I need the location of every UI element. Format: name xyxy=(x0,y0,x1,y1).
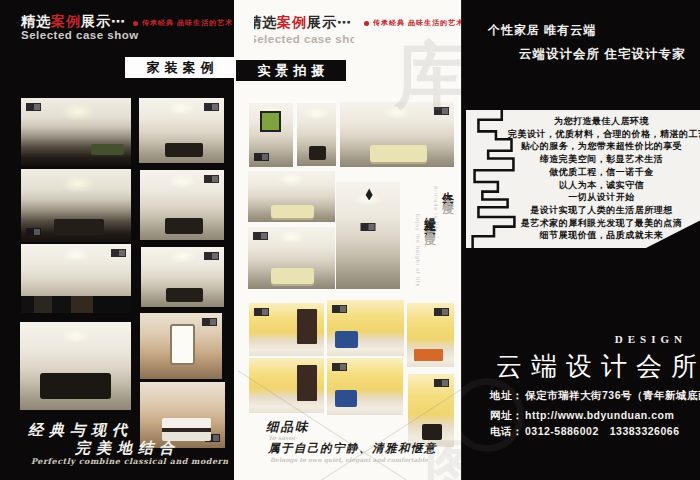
scene-photo-chandelier-dining xyxy=(336,182,400,289)
taste-line: 属于自己的宁静、清雅和惬意 xyxy=(268,441,437,456)
address-value: 保定市瑞祥大街736号（青年新城底商） xyxy=(525,389,700,401)
intro-line: 贴心的服务，为您带来超性价比的享受 xyxy=(508,140,695,153)
intro-line: 完美设计，优质材料，合理的价格，精湛的工艺 xyxy=(508,128,695,141)
vertical-text-dark: 缦享生活 xyxy=(424,208,436,220)
corner-triangle-decor xyxy=(646,220,700,248)
middle-panel-title: 精选案例展示⋯ xyxy=(254,14,352,30)
photo-logo-stamp xyxy=(204,175,219,183)
panel-home-cases: 精选案例展示⋯ Selected case show 传承经典 品味生活的艺术 … xyxy=(0,0,234,480)
photo-logo-stamp xyxy=(332,363,347,371)
intro-line: 一切从设计开始 xyxy=(508,191,695,204)
case-photo-dining-pattern-floor xyxy=(21,244,131,313)
slogan-expert: 云端设计会所 住宅设计专家 xyxy=(519,46,685,63)
intro-line: 为您打造最佳人居环境 xyxy=(508,115,695,128)
photo-logo-stamp xyxy=(434,308,449,316)
photo-logo-stamp xyxy=(254,308,269,316)
intro-line: 做优质工程，信一诺千金 xyxy=(508,166,695,179)
middle-panel-subtitle: Selected case show xyxy=(254,33,354,43)
scene-photo-yellow-dining xyxy=(249,303,324,356)
left-tagline-text: 传承经典 品味生活的艺术 xyxy=(142,18,233,28)
website-value: http://www.bdyunduan.com xyxy=(525,409,674,421)
middle-tagline: 传承经典 品味生活的艺术 xyxy=(364,18,464,28)
case-photo-bright-living xyxy=(139,98,224,163)
intro-line: 以人为本，诚实守信 xyxy=(508,179,695,192)
middle-subtitle-clip: Selected case show xyxy=(254,29,354,43)
taste-title-english: To savor xyxy=(268,434,296,441)
design-label: DESIGN xyxy=(462,333,687,345)
contact-phone: 电话：0312-5886002 13383326066 xyxy=(490,425,679,439)
phone-value: 0312-5886002 13383326066 xyxy=(525,425,679,437)
scene-photo-yellow-hall-blue-door xyxy=(327,358,403,415)
scene-photo-yellow-orange-table xyxy=(407,303,454,367)
title-red-part: 案例 xyxy=(277,14,307,30)
vertical-text-english-2: Enjoy the height of life xyxy=(415,214,421,287)
red-dot-icon xyxy=(133,21,138,26)
case-photo-living-black-sofa xyxy=(21,169,131,242)
scene-photo-cream-sofa-a xyxy=(248,171,335,222)
middle-title-clip: 精选案例展示⋯ xyxy=(254,13,354,30)
photo-logo-stamp xyxy=(332,305,347,313)
photo-logo-stamp xyxy=(202,318,217,326)
photo-logo-stamp xyxy=(204,103,219,111)
left-panel-subtitle: Selected case show xyxy=(21,29,139,41)
address-label: 地址： xyxy=(490,389,523,401)
contact-address: 地址：保定市瑞祥大街736号（青年新城底商） xyxy=(490,389,700,403)
vertical-text-light: 态度 xyxy=(442,189,454,195)
taste-line-english: Belongs to own quiet, elegant and comfor… xyxy=(270,456,428,463)
photo-logo-stamp xyxy=(111,249,126,257)
scene-photo-cream-sofa-b xyxy=(248,227,335,289)
photo-logo-stamp xyxy=(26,103,41,111)
intro-line: 是设计实现了人类的生活居所理想 xyxy=(508,204,695,217)
brand-name: 云端设计会所 xyxy=(496,349,700,384)
case-photo-tv-wall xyxy=(140,170,224,240)
photo-logo-stamp xyxy=(26,228,41,236)
panel-brand-info: 个性家居 唯有云端 云端设计会所 住宅设计专家 为您打造最佳人居环境 完美设计，… xyxy=(461,0,700,480)
left-tagline: 传承经典 品味生活的艺术 xyxy=(133,18,233,28)
title-part1: 精选 xyxy=(21,13,51,29)
title-part1: 精选 xyxy=(254,14,277,30)
case-photo-octagon-hallway xyxy=(140,313,222,379)
photo-logo-stamp xyxy=(205,434,220,442)
intro-box: 为您打造最佳人居环境 完美设计，优质材料，合理的价格，精湛的工艺 贴心的服务，为… xyxy=(466,110,700,248)
tab-home-cases-label: 家装案例 xyxy=(142,59,219,77)
scene-photo-yellow-tv-corner xyxy=(408,374,454,447)
middle-tagline-text: 传承经典 品味生活的艺术 xyxy=(373,18,464,28)
title-red-part: 案例 xyxy=(51,13,81,29)
title-part2: 展示⋯ xyxy=(307,14,352,30)
scene-photo-doorway-art xyxy=(249,103,293,167)
case-photo-living-green-sofa xyxy=(21,98,131,166)
left-footer-english: Perfectly combine classical and modern xyxy=(31,456,229,466)
vertical-text-enjoy-life: 缦享生活高度 xyxy=(422,208,437,226)
slogan-personality: 个性家居 唯有云端 xyxy=(488,22,596,39)
vertical-text-life-attitude: 生活态度 xyxy=(440,183,455,195)
brochure-poster: 精选案例展示⋯ Selected case show 传承经典 品味生活的艺术 … xyxy=(0,0,700,480)
tab-real-scene-label: 实景拍摄 xyxy=(253,62,330,80)
case-photo-black-dining-set xyxy=(20,322,131,410)
photo-logo-stamp xyxy=(361,223,376,231)
tab-real-scene: 实景拍摄 xyxy=(236,60,346,81)
title-part2: 展示⋯ xyxy=(81,13,126,29)
photo-logo-stamp xyxy=(434,379,449,387)
red-dot-icon xyxy=(364,21,369,26)
intro-line: 缔造完美空间，彰显艺术生活 xyxy=(508,153,695,166)
scene-photo-bar-stools xyxy=(297,103,336,166)
panel-real-scene: 精选案例展示⋯ Selected case show 传承经典 品味生活的艺术 … xyxy=(234,0,461,480)
vertical-text-light: 高度 xyxy=(424,220,436,226)
photo-logo-stamp xyxy=(254,153,269,161)
contact-website: 网址：http://www.bdyunduan.com xyxy=(490,409,674,423)
photo-logo-stamp xyxy=(204,252,219,260)
photo-logo-stamp xyxy=(434,107,449,115)
scene-photo-yellow-living-blue-sofa xyxy=(327,300,404,356)
left-footer-line1: 经典与现代 xyxy=(28,421,133,440)
case-photo-sideboard-dining xyxy=(141,247,224,307)
tab-home-cases: 家装案例 xyxy=(125,57,235,78)
website-label: 网址： xyxy=(490,409,523,421)
scene-photo-yellow-hall-dark-door xyxy=(249,358,324,413)
scene-photo-long-living xyxy=(340,102,454,167)
photo-logo-stamp xyxy=(253,232,268,240)
phone-label: 电话： xyxy=(490,425,523,437)
